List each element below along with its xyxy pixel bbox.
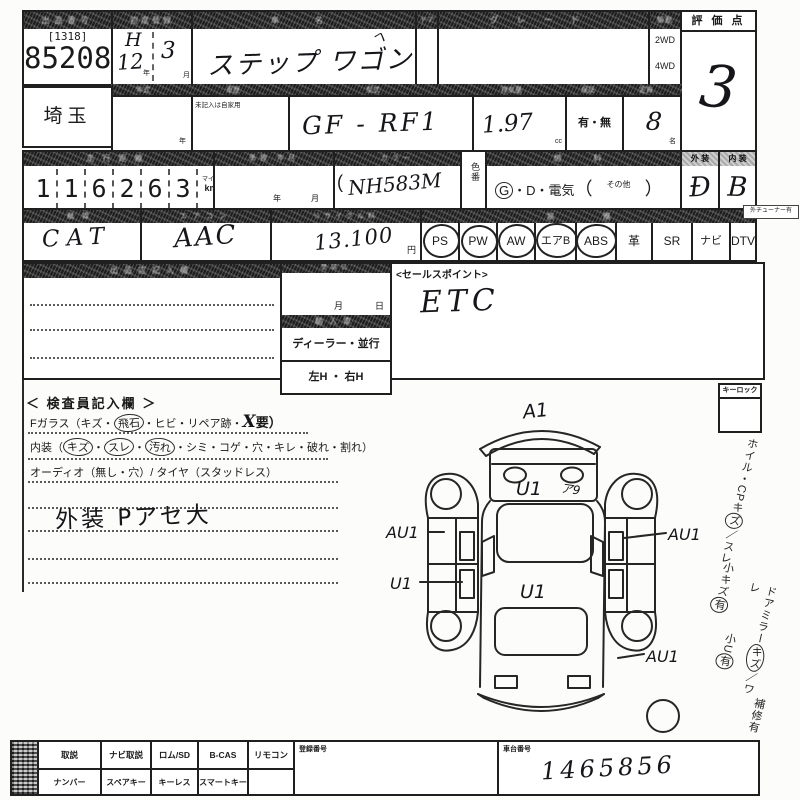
inspector-title: ＜ 検査員記入欄 ＞ [26,393,157,412]
recycle-box: リサイクル料 13.100 円 [270,208,422,262]
fuel-sep: ・ [513,183,526,198]
line2-circled-kizu: キズ [63,437,94,457]
color-code-box: カラー ( NH583M [333,150,462,212]
recycle-header-label: リサイクル料 [313,213,379,220]
sales-point-label: <セールスポイント> [392,264,763,281]
left-window-2 [460,570,474,598]
reg-month-unit: 月 [183,70,190,80]
fuel-electric: 電気 [549,183,575,198]
catalyst-header: 触媒 [24,210,140,223]
model-value: GF - RF1 [302,107,441,141]
auction-sheet: 出品番号 [1318] 85208 初度登録 H 12 年 3 月 車 名 ステ… [0,0,800,800]
line1-mid: ・ヒビ・リペア跡・ [144,418,243,430]
import-box: 登録日 月 日 輸入車 ディーラー・並行 左H ・ 右H [280,262,392,395]
date-divider [152,32,154,81]
cell-navi-manual: ナビ取説 [102,742,152,768]
keylock-cell [718,399,762,433]
annotation-hood-note: ア9 [560,481,581,498]
line2-prefix: 内装（ [30,442,63,454]
import-label-bar: 輸入車 [282,315,390,328]
fuel-header: 燃 料 [487,152,680,166]
region-box: 埼玉 [22,86,113,148]
right-rear-wheel [622,611,652,641]
insp-month-label: 月 [311,193,319,204]
paren-open: ( [337,172,343,193]
grade-box: グレード [437,10,650,86]
drive-4wd: 4WD [650,61,680,71]
line1-hand-x: X [243,412,256,432]
first-registration-box: 初度登録 H 12 年 3 月 [111,10,193,86]
inspection-header: 車検 年月 [215,152,333,166]
first-registration-header-label: 初度登録 [130,16,174,25]
catalyst-box: 触媒 CAT [22,208,142,262]
keylock-label: キーロック [718,383,762,399]
interior-header: 内 装 [720,152,755,166]
import-date-cell: 月 日 [282,273,390,315]
right-window-1 [609,532,623,560]
cell-rom-sd: ロム/SD [152,742,199,768]
recycle-value: 13.100 [313,223,395,255]
exterior-grade: Đ [681,165,719,211]
grade-header: グレード [439,12,648,29]
margin-wheel-text: ホイル・CPキ [730,437,759,515]
color-header-label: カラー [381,155,414,162]
fuel-paren-open: （ [575,179,593,199]
interior-grade: B [719,165,756,210]
cell-remote-empty [249,768,295,794]
fuel-sep: ・ [536,183,549,198]
handle-cell: 左H ・ 右H [282,362,390,395]
seller-notes-box: 出品店記入欄 [22,262,282,380]
equip-navi: ナビ [693,223,731,260]
bottom-noise-cell [12,742,39,794]
displacement-cell: 1.97 cc [472,95,567,152]
note-rule [30,329,274,331]
equip-sr: SR [653,223,693,260]
line2-circled-sure: スレ [103,437,134,457]
inspector-rule [28,582,338,584]
line1-circled-tobiishi: 飛石 [113,413,144,433]
model-cell: GF - RF1 [288,95,474,152]
region-value: 埼玉 [24,88,111,146]
car-damage-diagram: A1 U1 ア9 AU1 AU1 U1 U1 AU1 [378,392,718,742]
margin-mirror-circled: キズ [744,643,766,673]
score-value: 3 [676,28,760,145]
margin-small-dent-text: 小U [720,632,736,655]
aircon-value: AAC [173,220,238,254]
car-name-header-label: 車 名 [271,16,337,25]
chassis-number-value: 1465856 [540,750,676,785]
mileage-digit: 6 [142,169,170,209]
inspection-year-cell: 年 [111,95,193,152]
line2-sep: ・ [93,442,104,454]
mileage-box: 走行距離 1 1 6 2 6 3 マイル km [22,150,215,212]
note-rule [30,304,274,306]
right-front-wheel [622,479,652,509]
use-cell: 未記入は自家用 [191,95,290,152]
reg-era: H [125,29,142,51]
front-bumper-inner [486,439,594,456]
drive-header-label: 駆動 [657,17,673,24]
sales-point-box: <セールスポイント> ETC [390,262,765,380]
inspector-rule [28,481,338,483]
exterior-header: 外 装 [682,152,718,166]
fuel-other: その他 [593,179,645,190]
fuel-diesel: D [526,183,535,198]
first-registration-header: 初度登録 [113,12,191,29]
equip-dtv: DTV [731,223,755,260]
front-face [490,449,597,501]
mileage-digit: 6 [86,169,114,209]
left-front-wheel [431,479,461,509]
fuel-box: 燃 料 G・D・電気（その他） [485,150,682,212]
import-label: 輸入車 [315,317,357,326]
cell-remote: リモコン [249,742,295,768]
drive-2wd: 2WD [650,35,680,45]
inspector-line2: 内装（キズ・スレ・汚れ・シミ・コゲ・穴・キレ・破れ・割れ） [30,438,373,456]
left-rear-wheel [431,611,461,641]
door-header-label: ドア [420,17,434,24]
fuel-gasoline-circled: G [494,181,513,199]
catalyst-value: CAT [41,223,112,253]
fuel-paren-close: ） [645,179,663,199]
headlight-right [561,468,583,483]
color-code-value: NH583M [347,168,442,200]
rear-au1-pointer [618,654,644,658]
bottom-table: 取説 ナビ取説 ロム/SD B-CAS リモコン ナンバー スペアキー キーレス… [10,740,760,796]
mileage-header-label: 走行距離 [87,154,151,163]
interior-box: 内 装 B [718,150,757,212]
note-rule [30,357,274,359]
capacity-cell: 8 名 [622,95,682,152]
annotation-roof-u1: U1 [520,581,546,603]
body-left-edge [480,501,490,687]
taillight-left [495,676,517,688]
right-window-2 [609,570,623,598]
body-right-edge [597,501,605,687]
import-date-header-label: 登録日 [321,265,351,271]
line2-circled-yogore: 汚れ [144,437,175,458]
registration-number-label: 登録番号 [295,742,497,754]
cell-smart-key: スマートキー [199,768,249,794]
equipment-header-label: 装 備 [547,212,631,221]
cell-manual: 取説 [39,742,102,768]
insp-year-label: 年 [273,193,281,204]
aircon-header-label: エアコン [180,213,232,220]
private-note: 未記入は自家用 [193,97,288,109]
inspector-rule [28,432,308,434]
reg-year-unit: 年 [143,68,150,78]
registration-number-cell: 登録番号 [295,742,499,794]
capacity-value: 8 [645,106,663,136]
reg-year: 12 [116,49,144,75]
lot-number: 85208 [24,43,111,73]
annotation-right-au1: AU1 [667,525,701,544]
rear-bumper-outer [478,694,604,707]
line1-prefix: Fガラス（キズ・ [30,418,114,430]
inspector-line1: Fガラス（キズ・飛石・ヒビ・リペア跡・X要） [30,412,282,432]
left-window-1 [460,532,474,560]
rear-bumper-ends [478,694,604,698]
color-label-box: 色番 [460,150,487,212]
day-label: 日 [375,299,384,312]
mileage-header: 走行距離 [24,152,213,166]
cell-spare-key: スペアキー [102,768,152,794]
equipment-box: 装 備 PS PW AW エアB ABS 革 SR ナビ DTV [420,208,757,262]
line1-suffix: 要） [256,415,282,430]
inspection-date-box: 車検 年月 年 月 [213,150,335,212]
annotation-left-au1: AU1 [385,523,419,542]
drive-box: 駆動 2WD 4WD [648,10,682,86]
rear-bumper-inner [484,698,598,711]
exterior-box: 外 装 Đ [680,150,720,212]
mileage-digit: 2 [114,169,142,209]
mileage-digit: 1 [58,169,86,209]
door-box: ドア [415,10,439,86]
lot-header: 出品番号 [24,12,111,29]
seller-notes-header: 出品店記入欄 [24,264,280,278]
yen-label: 円 [407,243,416,256]
inspection-header-label: 車検 年月 [249,155,299,162]
recycle-header: リサイクル料 [272,210,420,223]
aircon-box: エアコン AAC [140,208,272,262]
cell-keyless: キーレス [152,768,199,794]
car-name-box: 車 名 ステップ ワゴン ヘ [191,10,417,86]
reg-month: 3 [161,38,176,64]
lot-box: 出品番号 [1318] 85208 [22,10,113,86]
warranty-cell: 有・無 [565,95,624,152]
right-au1-pointer [624,533,666,538]
color-label: 色番 [469,162,482,182]
mileage-digits: 1 1 6 2 6 3 マイル km [30,169,224,209]
fuel-line: G・D・電気（その他） [495,175,663,201]
door-header: ドア [417,12,437,29]
cell-number-plate: ナンバー [39,768,102,794]
annotation-rear-au1: AU1 [645,647,679,666]
grade-header-label: グレード [489,15,597,25]
sales-point-value: ETC [419,283,500,321]
taillight-right [568,676,590,688]
margin-small-scratch-text: 小キズ [715,561,735,599]
mileage-digit: 3 [170,169,198,209]
line2-suffix: ・シミ・コゲ・穴・キレ・破れ・割れ） [175,442,373,454]
warranty-options: 有・無 [567,97,622,149]
keylock-box: キーロック [718,383,762,433]
windshield [497,504,593,562]
lot-header-label: 出品番号 [42,16,94,25]
equip-leather: 革 [617,223,653,260]
sheet-left-edge [22,380,24,592]
equipment-header: 装 備 [422,210,755,223]
chassis-number-cell: 車台番号 1465856 [499,742,758,794]
month-label: 月 [334,299,343,312]
catalyst-header-label: 触媒 [67,213,97,220]
year-unit-label: 年 [179,136,186,146]
displacement-value: 1.97 [481,109,534,139]
left-pillar-window [482,536,494,576]
inspector-line3: オーディオ（無し・穴）/ タイヤ（スタッドレス） [30,464,277,480]
cc-unit: cc [555,138,562,145]
inspector-rule [28,458,328,460]
color-header: カラー [335,152,460,166]
cell-bcas: B-CAS [199,742,249,768]
line2-sep: ・ [134,442,145,454]
empty-mark-circle [647,700,679,732]
inspector-rule [28,558,338,560]
tuner-note-box: 外チューナー有 [743,205,799,219]
annotation-hood-u1: U1 [516,478,542,500]
rear-window [495,608,587,655]
drive-header: 駆動 [650,12,680,29]
annotation-left-u1: U1 [390,574,412,593]
import-date-header: 登録日 [282,264,390,273]
annotation-front-a1: A1 [520,399,549,424]
inspector-note: 外装 Pアセ大 [54,495,212,534]
capacity-unit: 名 [669,136,676,146]
seller-notes-header-label: 出品店記入欄 [110,266,194,275]
mileage-digit: 1 [30,169,58,209]
dealer-parallel-cell: ディーラー・並行 [282,328,390,362]
fuel-header-label: 燃 料 [554,154,614,163]
score-box: 評 価 点 3 [680,10,757,152]
